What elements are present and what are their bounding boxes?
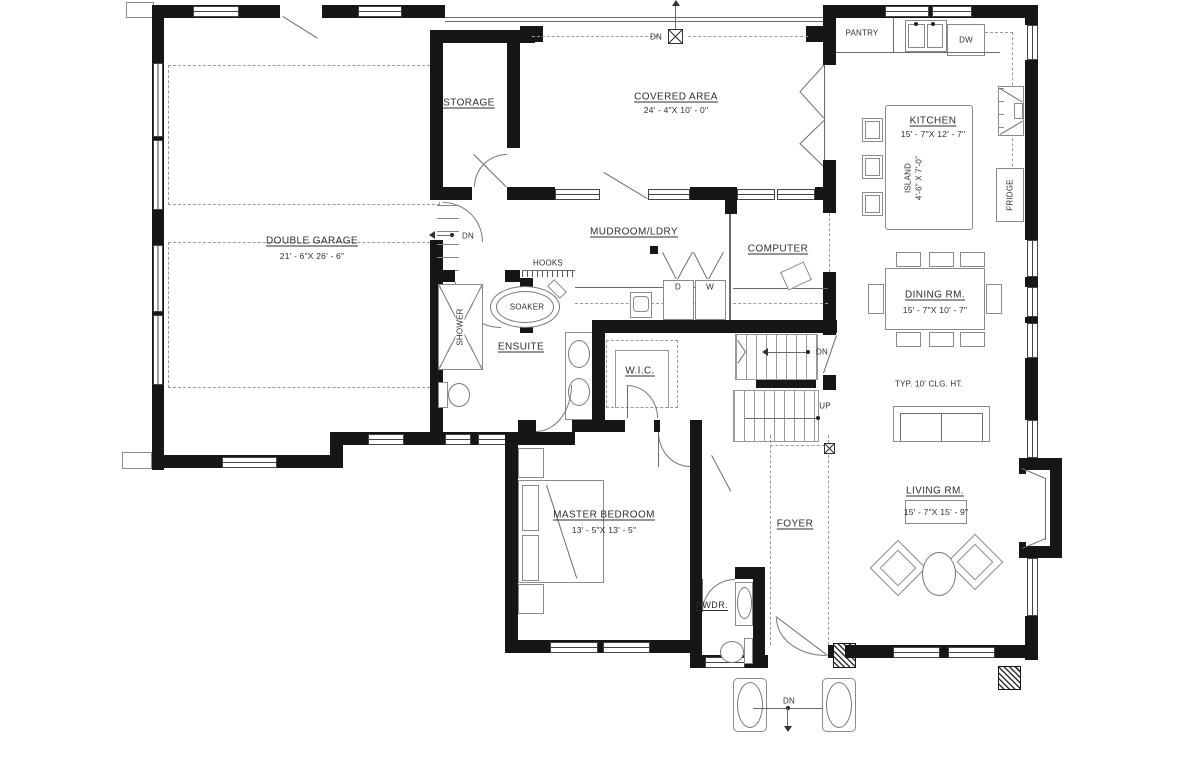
sofa-arm-line [900, 413, 901, 441]
chair [986, 284, 1002, 314]
wall [592, 320, 837, 333]
garage-stall-outline [168, 242, 440, 388]
desk-dashed [733, 303, 828, 304]
toilet-tank [438, 382, 448, 408]
wall [690, 187, 737, 200]
arrow-dot [806, 350, 810, 354]
downspout [126, 2, 154, 18]
pantry-divider [893, 18, 894, 52]
desk-edge [733, 288, 828, 289]
stool-inner [865, 195, 880, 213]
window [193, 6, 239, 17]
ensuite-label: ENSUITE [498, 342, 544, 353]
bifold-door [662, 252, 677, 279]
firebox-line [1045, 478, 1046, 540]
range-coils [999, 88, 1004, 134]
stool-inner [865, 158, 880, 176]
wall [725, 200, 737, 214]
wall [823, 375, 836, 390]
arrow-line [787, 708, 788, 726]
toilet-tank [744, 638, 753, 664]
chair [960, 252, 985, 267]
covered-area-dims: 24' - 4"X 10' - 0" [644, 105, 708, 115]
pwdr-label: PWDR. [696, 600, 728, 610]
dn-label: DN [462, 232, 474, 241]
fireplace-wall [1025, 546, 1057, 558]
door-swing [658, 432, 690, 467]
window [153, 315, 163, 385]
wall [1025, 60, 1038, 240]
partition [729, 214, 731, 320]
faucet [914, 22, 918, 26]
window [948, 647, 995, 658]
door-swing [776, 618, 826, 656]
closet-door-leaf [711, 455, 731, 492]
wall [505, 270, 520, 282]
washer-label: W [706, 283, 714, 292]
arrow-head [429, 231, 435, 239]
chair [929, 332, 954, 347]
door-leaf [627, 385, 628, 418]
porch-column-base [826, 682, 852, 728]
window [358, 6, 402, 17]
window [1027, 323, 1038, 358]
arrow-head [762, 348, 768, 356]
door-swing [536, 385, 572, 432]
arrow-line [675, 6, 676, 29]
master-dims: 13' - 5"X 13' - 5" [572, 525, 636, 535]
ceiling-note: TYP. 10' CLG. HT. [895, 380, 963, 389]
stairs-up-flight [733, 390, 819, 442]
living-dims: 15' - 7"X 15' - 9" [904, 507, 968, 517]
window [153, 245, 163, 312]
wall [430, 187, 472, 200]
bay-door-line [799, 91, 824, 118]
sofa-arm-line [982, 413, 983, 441]
wall [505, 432, 518, 652]
wall [430, 270, 455, 282]
computer-label: COMPUTER [748, 244, 808, 255]
hooks-label: HOOKS [533, 259, 563, 268]
chair [960, 332, 985, 347]
chair [896, 332, 921, 347]
porch-column-base [737, 682, 763, 728]
chair [868, 284, 884, 314]
bifold-door [693, 252, 708, 279]
ceiling-break-line [828, 435, 829, 645]
desk-chair [780, 261, 812, 290]
window [555, 189, 600, 200]
foyer-label: FOYER [777, 519, 813, 530]
wall [1025, 277, 1038, 287]
wall [753, 567, 765, 668]
sink-basin [927, 24, 943, 48]
nightstand [518, 584, 544, 614]
soaker-label: SOAKER [510, 303, 545, 312]
toilet-bowl [720, 641, 744, 663]
window [737, 189, 775, 200]
wall [1025, 5, 1038, 25]
stool-inner [865, 121, 880, 139]
bed-pillow [522, 485, 539, 531]
wall [654, 420, 660, 432]
dishwasher-label: DW [959, 36, 973, 45]
fireplace-jamb [1019, 458, 1026, 474]
post-marker [824, 443, 835, 454]
living-label: LIVING RM. [906, 486, 964, 497]
window [1027, 420, 1038, 458]
window [222, 457, 277, 468]
fireplace-wall [1050, 458, 1062, 558]
window [932, 6, 972, 17]
post-marker [668, 29, 683, 44]
window [1027, 287, 1038, 317]
arrow-dot [816, 416, 820, 420]
bifold-door [677, 252, 693, 280]
window [603, 642, 650, 653]
dryer-label: D [675, 283, 681, 292]
wall [507, 43, 520, 148]
porch-edge [445, 21, 823, 22]
dn-label: DN [816, 348, 828, 357]
garage-label: DOUBLE GARAGE [266, 236, 358, 247]
door-jamb [650, 246, 658, 254]
downspout [122, 452, 152, 469]
dn-label: DN [783, 697, 795, 706]
chair [896, 252, 921, 267]
faucet [931, 22, 935, 26]
wall [690, 420, 702, 668]
bed-pillow [522, 535, 539, 581]
chair [929, 252, 954, 267]
shower-label: SHOWER [456, 306, 465, 347]
wall [823, 5, 1038, 18]
arrow-line [437, 235, 451, 236]
wall [430, 30, 443, 195]
bay-door-line [799, 143, 823, 167]
window [777, 189, 815, 200]
porch-edge [445, 17, 823, 18]
window [893, 647, 940, 658]
dining-label: DINING RM. [905, 290, 965, 301]
counter-edge [893, 52, 1000, 53]
wic-label: W.I.C. [623, 366, 657, 377]
eave-dashed-line [688, 36, 808, 37]
porch-post-hatched [998, 666, 1021, 690]
fireplace-jamb [1019, 542, 1026, 558]
wall [507, 187, 555, 200]
wall [518, 420, 536, 432]
kitchen-dims: 15' - 7"X 12' - 7" [901, 129, 965, 139]
wall [592, 325, 605, 432]
sink-basin [908, 24, 925, 48]
stair-divider [756, 380, 816, 388]
nightstand [518, 448, 544, 478]
pwdr-sink [737, 587, 752, 619]
door-leaf [282, 16, 317, 39]
window [368, 434, 404, 445]
sofa-cushion-line [941, 413, 942, 441]
dining-dims: 15' - 7"X 10' - 7" [903, 305, 967, 315]
floor-plan: DOUBLE GARAGE 21' - 6"X 26' - 6" STORAGE… [0, 0, 1200, 770]
storage-label: STORAGE [443, 98, 495, 109]
door-opening [280, 5, 322, 18]
arrow-head [784, 726, 792, 732]
window [648, 189, 690, 200]
wall [823, 160, 836, 213]
island-label: ISLAND [904, 163, 913, 193]
vanity-sink [568, 340, 590, 368]
ceiling-break-line [770, 445, 825, 446]
up-label: UP [819, 402, 831, 411]
arrow-head [672, 0, 680, 6]
arrow-line [768, 352, 806, 353]
garage-steps [437, 205, 459, 280]
mudroom-label: MUDROOM/LDRY [590, 227, 678, 238]
bifold-door [708, 252, 724, 280]
window [153, 140, 163, 210]
hooks-ticks [522, 271, 575, 277]
kitchen-label: KITCHEN [910, 116, 957, 127]
ottoman [922, 552, 956, 596]
wall [572, 420, 625, 432]
window [445, 434, 471, 445]
stairs-down-flight [735, 334, 818, 380]
garage-stall-outline [168, 65, 440, 205]
wall [845, 645, 1038, 658]
garage-dims: 21' - 6"X 26' - 6" [280, 251, 344, 261]
ceiling-break-line [829, 213, 830, 272]
fridge-label: FRIDGE [1006, 179, 1015, 210]
door-leaf [658, 432, 659, 467]
covered-area-label: COVERED AREA [634, 92, 718, 103]
toilet-bowl [448, 383, 470, 407]
window [885, 6, 929, 17]
bay-door-line [800, 64, 825, 91]
master-label: MASTER BEDROOM [553, 510, 655, 521]
bay-opening-edge [824, 62, 825, 166]
ceiling-break-line [770, 435, 771, 645]
window [153, 63, 163, 137]
arrow-line [745, 418, 816, 419]
dn-label: DN [650, 33, 662, 42]
wall [823, 18, 836, 65]
door-leaf [603, 172, 647, 199]
wall [1025, 358, 1038, 420]
hood-vent [1014, 103, 1023, 119]
window [1027, 558, 1038, 616]
eave-dashed-line [532, 36, 658, 37]
island-dims: 4'-6" X 7'-0" [915, 156, 924, 200]
porch-post [520, 26, 543, 42]
pantry-label: PANTRY [846, 29, 879, 38]
wall [690, 567, 702, 579]
window [1027, 240, 1038, 277]
window [1027, 25, 1038, 60]
bay-door-line [800, 120, 824, 144]
window [550, 642, 598, 653]
counter-dashed [985, 32, 1013, 33]
laundry-sink-basin [633, 296, 649, 312]
pantry-counter-edge [836, 52, 893, 53]
